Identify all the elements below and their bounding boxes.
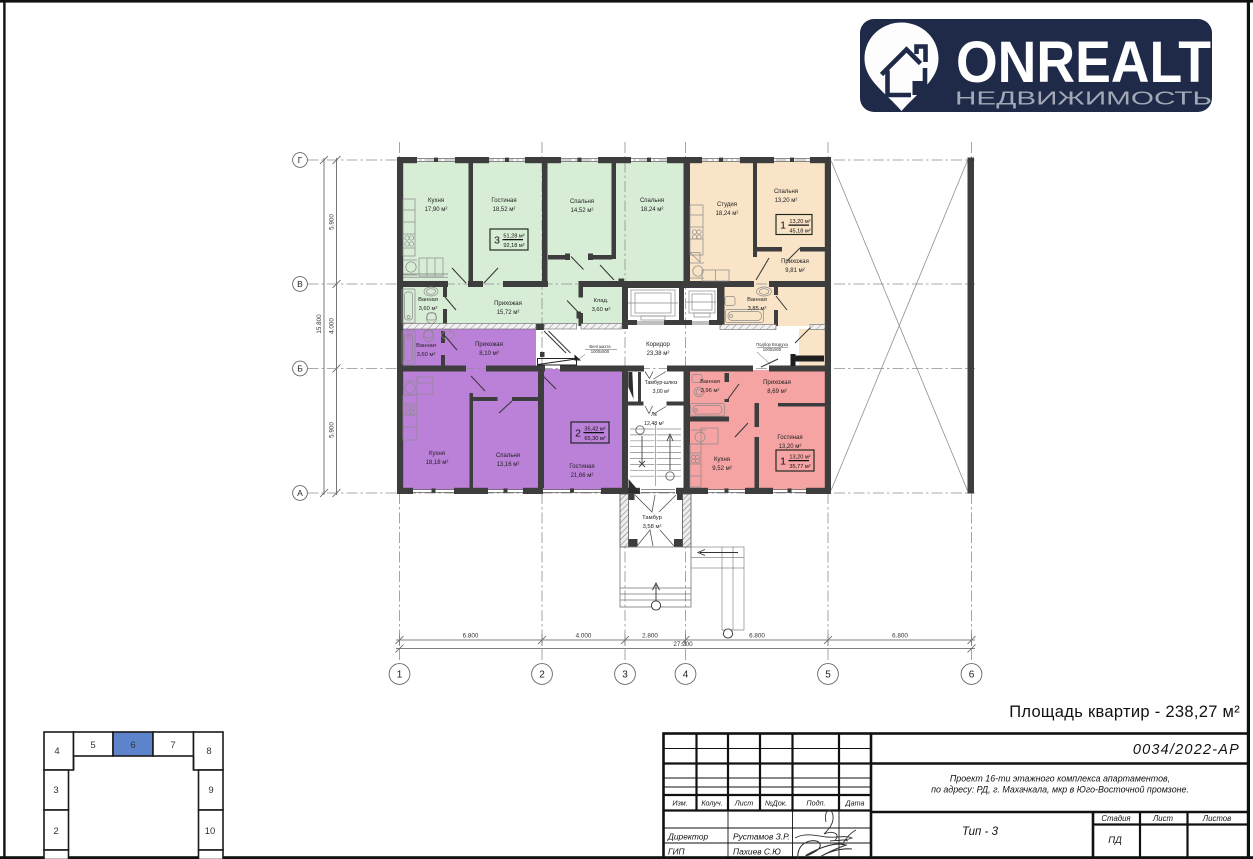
svg-text:Кухня: Кухня: [428, 198, 444, 204]
svg-text:по адресу: РД, г. Махачкала, м: по адресу: РД, г. Махачкала, мкр в Юго-В…: [931, 785, 1189, 795]
svg-text:12,48 м²: 12,48 м²: [644, 421, 664, 427]
svg-text:3,60 м²: 3,60 м²: [419, 306, 438, 312]
svg-text:Лист: Лист: [734, 799, 754, 808]
svg-text:8,69 м²: 8,69 м²: [767, 389, 786, 395]
svg-text:Площадь квартир - 238,27 м²: Площадь квартир - 238,27 м²: [1009, 703, 1240, 721]
svg-text:№Док.: №Док.: [765, 799, 787, 808]
svg-text:Прихожая: Прихожая: [475, 342, 503, 348]
svg-text:13,20 м²: 13,20 м²: [789, 455, 810, 461]
svg-text:18,24 м²: 18,24 м²: [641, 207, 664, 213]
svg-text:Студия: Студия: [717, 202, 737, 208]
svg-text:5: 5: [825, 670, 831, 681]
svg-text:Спальня: Спальня: [640, 198, 664, 204]
svg-text:4: 4: [54, 746, 59, 757]
svg-text:10: 10: [205, 826, 216, 837]
svg-text:9,52 м²: 9,52 м²: [712, 466, 731, 472]
svg-text:8: 8: [206, 746, 211, 757]
svg-text:Колуч.: Колуч.: [701, 799, 722, 808]
svg-text:Ванная: Ванная: [747, 297, 767, 303]
svg-text:6: 6: [969, 670, 975, 681]
svg-text:Гостиная: Гостиная: [569, 464, 594, 470]
svg-text:9,81 м²: 9,81 м²: [785, 268, 804, 274]
svg-text:Тамбур-шлюз: Тамбур-шлюз: [645, 380, 678, 386]
svg-text:13,20 м²: 13,20 м²: [775, 198, 798, 204]
svg-text:17,90 м²: 17,90 м²: [425, 207, 448, 213]
svg-text:5: 5: [90, 740, 95, 751]
svg-text:Кухня: Кухня: [714, 457, 730, 463]
svg-text:Изм.: Изм.: [672, 799, 687, 808]
svg-text:7: 7: [170, 740, 175, 751]
svg-text:5.900: 5.900: [329, 422, 336, 438]
svg-text:21,66 м²: 21,66 м²: [571, 473, 594, 479]
svg-text:Прихожая: Прихожая: [763, 380, 791, 386]
svg-text:1: 1: [780, 220, 786, 232]
svg-text:Г: Г: [298, 155, 303, 165]
svg-text:Клад.: Клад.: [594, 298, 609, 304]
svg-text:3: 3: [53, 785, 58, 796]
svg-text:23,38 м²: 23,38 м²: [647, 351, 670, 357]
svg-text:3,00 м²: 3,00 м²: [653, 389, 670, 395]
svg-text:3,60 м²: 3,60 м²: [417, 352, 436, 358]
svg-text:18,24 м²: 18,24 м²: [716, 211, 739, 217]
svg-text:Прихожая: Прихожая: [494, 301, 522, 307]
svg-text:Ванная: Ванная: [700, 379, 720, 385]
svg-text:Б: Б: [297, 364, 303, 374]
svg-text:27.200: 27.200: [673, 641, 693, 648]
svg-text:Тип - 3: Тип - 3: [962, 826, 999, 838]
svg-text:2: 2: [53, 826, 58, 837]
svg-text:Рустамов З.Р.: Рустамов З.Р.: [733, 832, 790, 842]
svg-text:14,52 м²: 14,52 м²: [571, 208, 594, 214]
svg-text:3,85 м²: 3,85 м²: [748, 306, 767, 312]
svg-text:4.000: 4.000: [576, 633, 592, 640]
svg-text:ГИП: ГИП: [668, 847, 686, 857]
svg-text:13,16 м²: 13,16 м²: [497, 462, 520, 468]
svg-text:2.800: 2.800: [642, 633, 658, 640]
svg-text:15.800: 15.800: [316, 314, 323, 334]
svg-text:Подп.: Подп.: [806, 799, 825, 808]
svg-text:Дата: Дата: [845, 799, 865, 808]
svg-text:А: А: [297, 488, 303, 498]
svg-text:НЕДВИЖИМОСТЬ: НЕДВИЖИМОСТЬ: [955, 89, 1212, 109]
svg-text:Стадия: Стадия: [1101, 814, 1131, 823]
svg-text:Ванная: Ванная: [418, 297, 438, 303]
svg-text:6.800: 6.800: [463, 633, 479, 640]
svg-text:Гостиная: Гостиная: [491, 198, 516, 204]
svg-text:3: 3: [622, 670, 628, 681]
svg-text:Коридор: Коридор: [646, 342, 670, 348]
svg-text:3,60 м²: 3,60 м²: [592, 307, 611, 313]
svg-text:2: 2: [539, 670, 545, 681]
svg-text:18,18 м²: 18,18 м²: [426, 460, 449, 466]
svg-text:18,52 м²: 18,52 м²: [493, 207, 516, 213]
svg-text:Спальня: Спальня: [496, 453, 520, 459]
svg-text:51,28 м²: 51,28 м²: [503, 234, 524, 240]
svg-text:1: 1: [397, 670, 403, 681]
svg-text:3: 3: [494, 235, 500, 247]
svg-text:35,42 м²: 35,42 м²: [584, 427, 605, 433]
svg-text:1: 1: [780, 456, 786, 468]
svg-text:4: 4: [683, 670, 689, 681]
svg-text:Листов: Листов: [1202, 814, 1231, 823]
svg-text:Проект 16-ти этажного комплекс: Проект 16-ти этажного комплекса апартаме…: [950, 774, 1170, 784]
svg-text:2: 2: [575, 428, 581, 440]
svg-text:13,20 м²: 13,20 м²: [789, 219, 810, 225]
svg-text:Ванная: Ванная: [416, 343, 436, 349]
svg-text:4.000: 4.000: [329, 318, 336, 334]
svg-text:13,20 м²: 13,20 м²: [779, 444, 802, 450]
svg-text:0034/2022-АР: 0034/2022-АР: [1133, 742, 1240, 758]
svg-text:ONREALT: ONREALT: [956, 30, 1211, 95]
svg-text:15,72 м²: 15,72 м²: [497, 310, 520, 316]
svg-text:35,77 м²: 35,77 м²: [789, 464, 810, 470]
svg-text:45,18 м²: 45,18 м²: [789, 228, 810, 234]
svg-text:9: 9: [208, 785, 213, 796]
svg-text:3,96 м²: 3,96 м²: [701, 388, 720, 394]
svg-text:65,30 м²: 65,30 м²: [584, 436, 605, 442]
svg-text:Кухня: Кухня: [429, 451, 445, 457]
svg-text:Прихожая: Прихожая: [781, 259, 809, 265]
svg-text:5.900: 5.900: [329, 214, 336, 230]
svg-text:8,10 м²: 8,10 м²: [479, 351, 498, 357]
svg-text:ПД: ПД: [1108, 835, 1122, 846]
svg-text:92,18 м²: 92,18 м²: [503, 243, 524, 249]
svg-text:6.800: 6.800: [749, 633, 765, 640]
svg-text:Спальня: Спальня: [570, 199, 594, 205]
svg-text:Гостиная: Гостиная: [777, 435, 802, 441]
svg-text:Пахиев С.Ю: Пахиев С.Ю: [733, 847, 781, 857]
svg-text:Лк: Лк: [651, 412, 657, 418]
svg-text:В: В: [297, 279, 303, 289]
svg-text:Спальня: Спальня: [774, 189, 798, 195]
svg-text:6.800: 6.800: [892, 633, 908, 640]
svg-text:Тамбур: Тамбур: [642, 515, 662, 521]
svg-text:6: 6: [130, 740, 135, 751]
svg-text:Лист: Лист: [1152, 814, 1174, 823]
svg-text:3,58 м²: 3,58 м²: [643, 524, 662, 530]
svg-text:Директор: Директор: [667, 832, 708, 842]
